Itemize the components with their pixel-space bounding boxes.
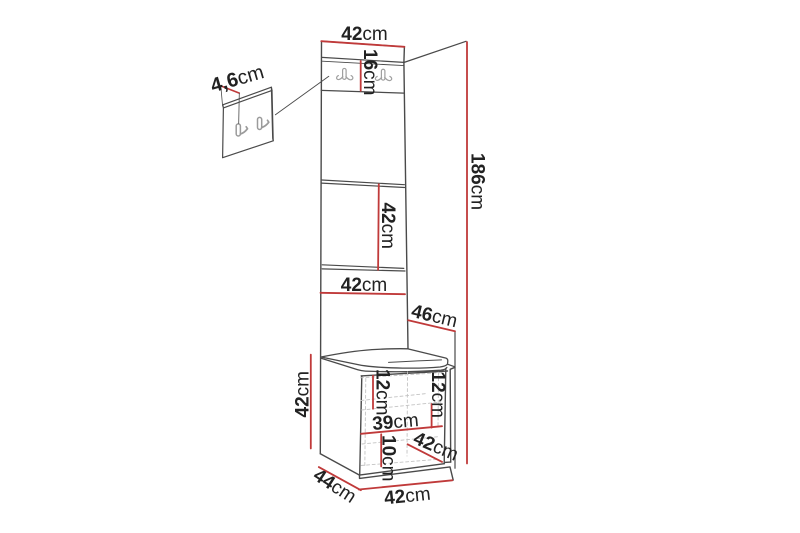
svg-text:12cm: 12cm — [427, 372, 448, 418]
svg-text:42cm: 42cm — [341, 275, 387, 296]
svg-text:39cm: 39cm — [371, 410, 419, 435]
svg-text:42cm: 42cm — [410, 428, 461, 465]
svg-text:42cm: 42cm — [383, 484, 431, 510]
svg-text:42cm: 42cm — [293, 371, 314, 417]
svg-text:10cm: 10cm — [378, 435, 399, 481]
svg-text:46cm: 46cm — [409, 301, 459, 332]
svg-text:12cm: 12cm — [372, 369, 393, 415]
svg-text:42cm: 42cm — [341, 24, 387, 45]
svg-text:16cm: 16cm — [359, 49, 380, 95]
svg-text:186cm: 186cm — [467, 153, 488, 210]
svg-text:42cm: 42cm — [377, 203, 398, 249]
